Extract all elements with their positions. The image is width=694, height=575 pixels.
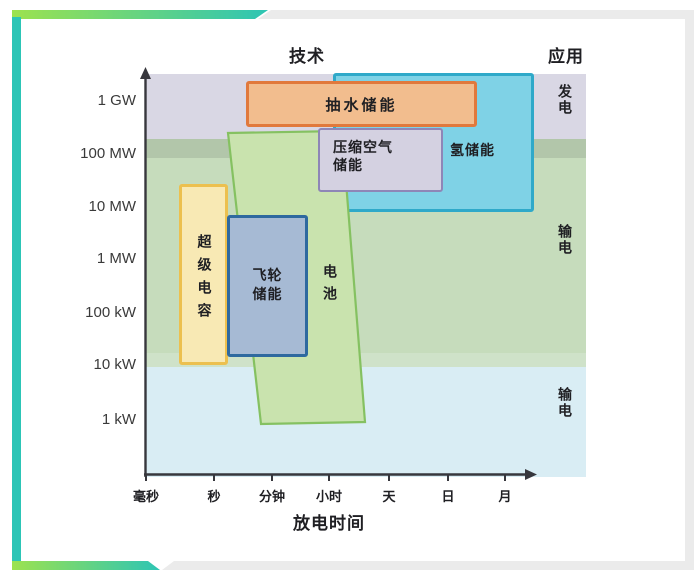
x-tick-minutes: 分钟 [248,486,296,505]
x-tick-days: 天 [365,486,413,505]
y-tick-1kw: 1 kW [74,411,136,429]
frame-top-gray-strip [258,10,694,19]
band-label-distribution: 输电 [554,387,574,419]
x-tick-day: 日 [424,486,472,505]
region-pumped-hydro-storage: 抽水储能 [246,81,477,127]
x-tickmark [328,474,330,481]
x-tick-milliseconds: 毫秒 [122,486,170,505]
frame-left-accent-bar [12,17,21,561]
frame-top-accent-bar [12,10,268,19]
region-compressed-air-storage: 压缩空气 储能 [318,128,443,192]
x-axis-title: 放电时间 [265,509,393,534]
x-tick-hours: 小时 [305,486,353,505]
region-label-hydrogen: 氢储能 [450,140,495,160]
y-tick-100mw: 100 MW [74,145,136,163]
x-tickmark [213,474,215,481]
region-label-pumped-hydro: 抽水储能 [325,94,397,115]
y-tick-1mw: 1 MW [74,250,136,268]
band-label-transmission: 输电 [554,224,574,256]
region-label-compressed-air: 压缩空气 储能 [333,139,393,175]
column-title-application: 应用 [538,42,594,67]
region-label-battery: 电池 [319,264,339,308]
frame-bottom-gray-strip [162,561,694,570]
x-tickmark [504,474,506,481]
band-distribution [145,367,586,477]
x-tick-seconds: 秒 [190,486,238,505]
column-title-technology: 技术 [279,42,335,67]
x-tickmark [388,474,390,481]
region-supercapacitor: 超级电容 [179,184,228,365]
x-tick-months: 月 [481,486,529,505]
y-tick-1gw: 1 GW [74,92,136,110]
band-label-generation: 发电 [554,84,574,116]
x-tickmark [447,474,449,481]
y-tick-100kw: 100 kW [74,304,136,322]
region-label-supercapacitor: 超级电容 [194,234,214,326]
region-label-flywheel: 飞轮 储能 [253,267,283,305]
y-tick-10kw: 10 kW [74,356,136,374]
infographic-canvas: 技术 应用 发电 输电 输电 氢储能 电池 超级电容 飞轮 储能 压缩空气 储能… [0,0,694,575]
x-tickmark [271,474,273,481]
region-flywheel-storage: 飞轮 储能 [227,215,308,357]
y-tick-10mw: 10 MW [74,198,136,216]
frame-bottom-accent-bar [12,561,160,570]
frame-right-gray-strip [685,10,694,570]
x-tickmark [145,474,147,481]
